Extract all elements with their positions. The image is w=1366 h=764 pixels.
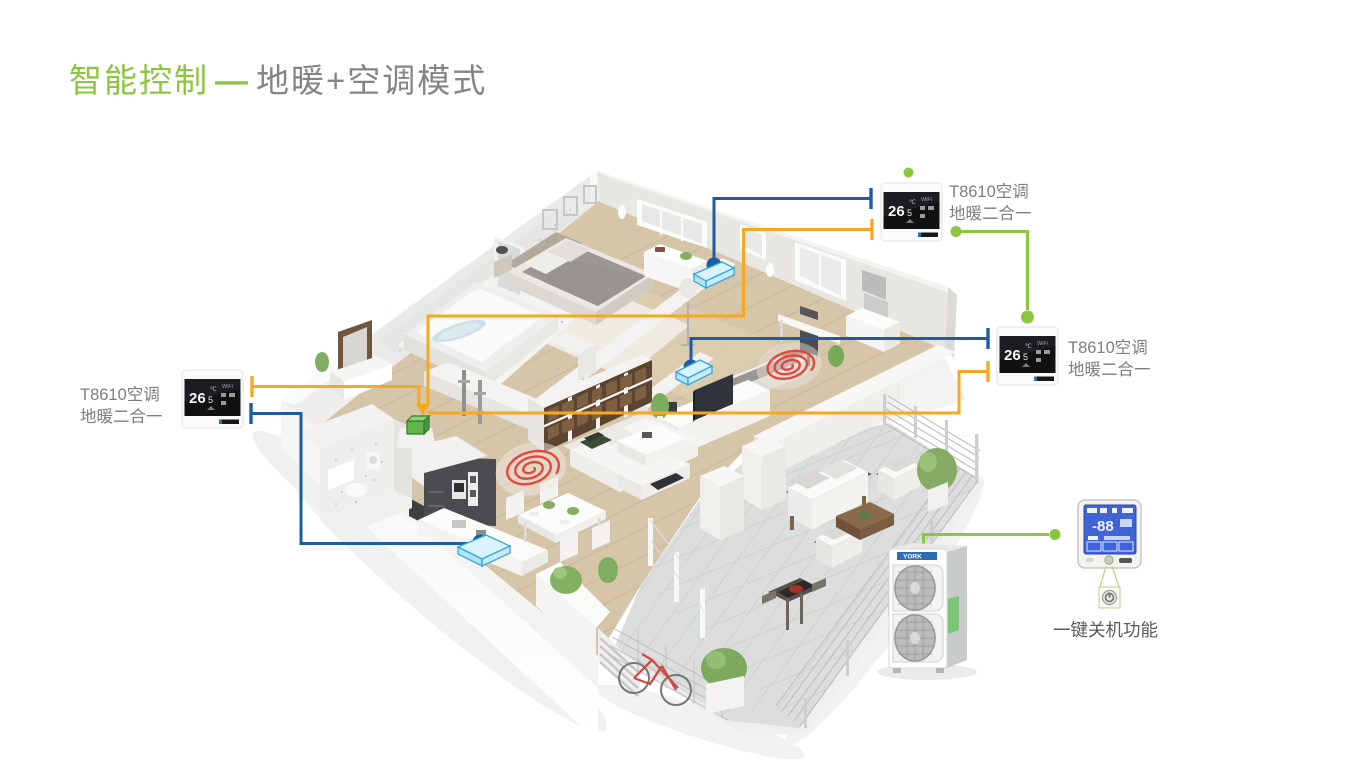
svg-text:YORK: YORK — [903, 554, 922, 561]
svg-text:℃: ℃ — [210, 387, 217, 393]
svg-text:T8610空调: T8610空调 — [1068, 338, 1148, 357]
svg-text:T8610空调: T8610空调 — [80, 385, 160, 404]
svg-text:5: 5 — [907, 208, 912, 218]
svg-text:地暖二合一: 地暖二合一 — [949, 204, 1032, 223]
svg-text:26: 26 — [189, 390, 206, 407]
svg-text:WiFi: WiFi — [921, 197, 932, 203]
svg-text:一键关机功能: 一键关机功能 — [1053, 620, 1158, 640]
svg-text:WiFi: WiFi — [222, 384, 233, 390]
svg-text:5: 5 — [1023, 352, 1028, 362]
svg-text:26: 26 — [1004, 347, 1021, 364]
svg-text:-88: -88 — [1092, 518, 1114, 535]
svg-text:地暖二合一: 地暖二合一 — [80, 407, 163, 426]
svg-text:℃: ℃ — [1025, 344, 1032, 350]
svg-text:WiFi: WiFi — [1037, 341, 1048, 347]
svg-text:地暖二合一: 地暖二合一 — [1068, 360, 1151, 379]
svg-text:℃: ℃ — [909, 200, 916, 206]
svg-text:26: 26 — [888, 203, 905, 220]
svg-text:T8610空调: T8610空调 — [949, 182, 1029, 201]
svg-text:5: 5 — [208, 395, 213, 405]
